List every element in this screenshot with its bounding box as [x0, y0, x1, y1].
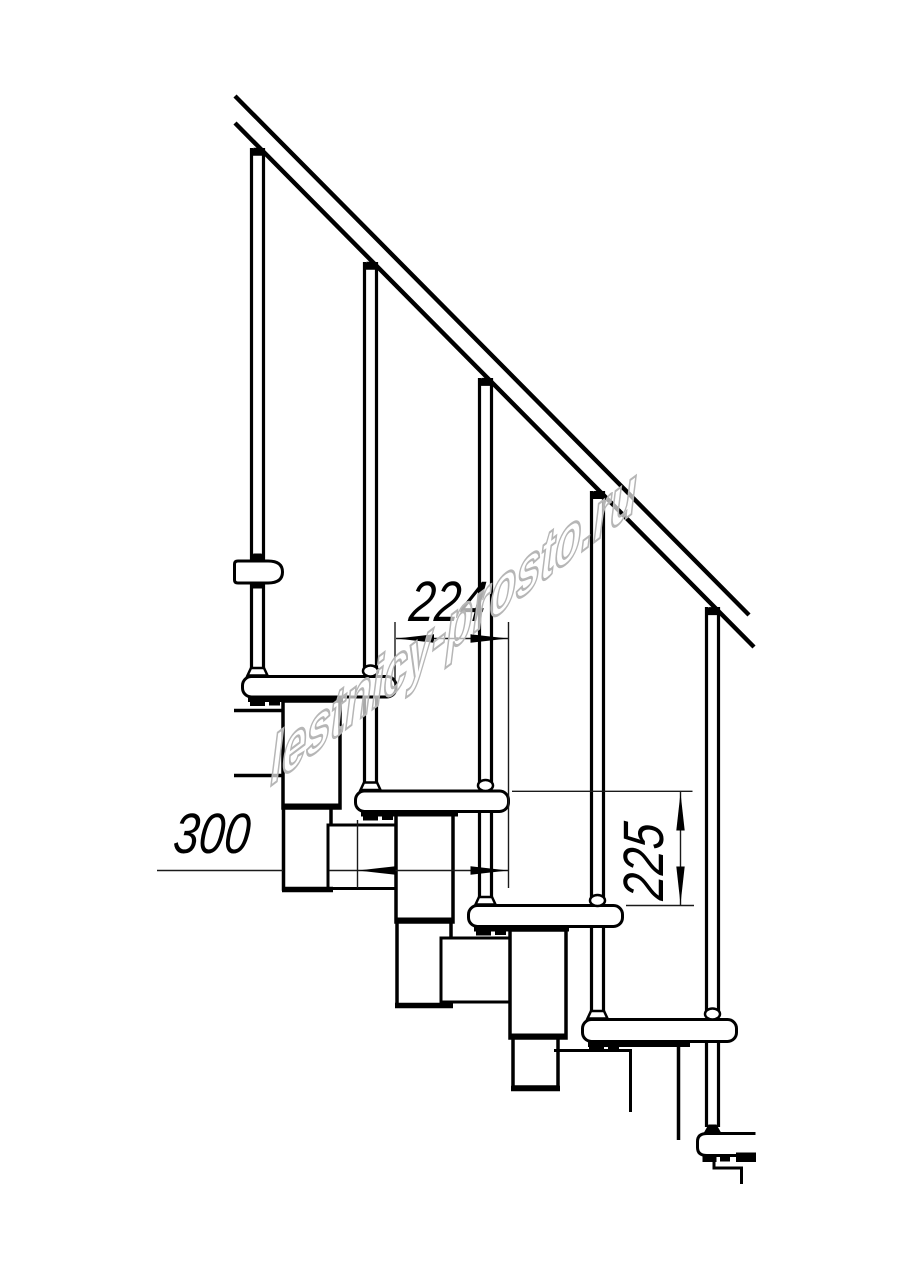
- svg-text:225: 225: [611, 819, 675, 903]
- svg-text:300: 300: [171, 801, 254, 865]
